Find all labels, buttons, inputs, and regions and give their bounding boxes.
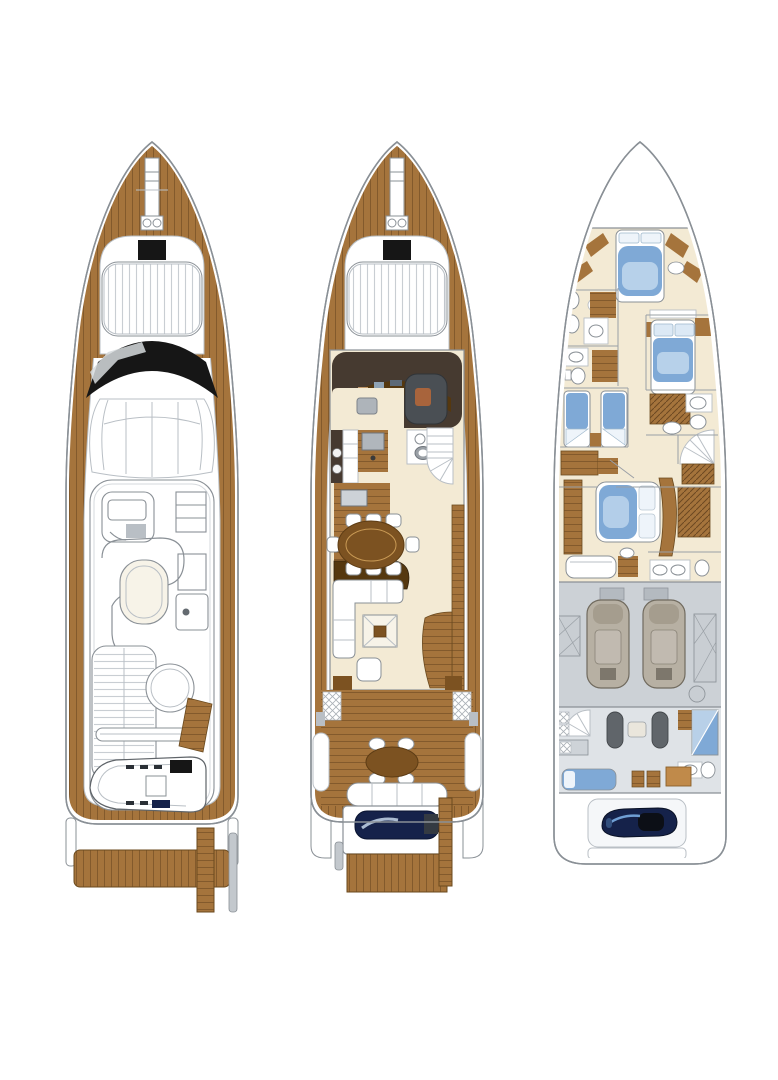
corner-cabinet-port [333,676,352,690]
port-walkway-step [313,733,329,791]
master-bed [596,482,660,542]
stern-platform [588,848,686,859]
tender-boat [90,757,206,812]
crew-table [628,722,646,737]
wet-bar-units [176,492,208,630]
foredeck-sun-pad [347,262,447,336]
stern-garage [588,799,686,859]
starboard-side-steps [453,692,471,720]
main-deck-plan [288,135,506,901]
crew-bunk [562,769,616,790]
helm-station [332,352,462,428]
armchair [357,658,381,681]
crew-shower [692,710,718,755]
port-cleat [316,712,325,726]
corner-cabinet-starboard [445,676,462,690]
port-side-steps [323,692,341,720]
crew-settee-starboard [652,712,668,748]
vip-stool [668,262,684,274]
twin-nightstand [590,433,601,447]
starboard-walkway-step [465,733,481,791]
passerelle-rail [229,833,237,912]
port-engine [587,600,629,688]
starboard-engine [643,600,685,688]
crew-cabinet [666,767,691,786]
master-sofa [566,556,616,578]
crew-toilet [701,762,715,778]
jet-tender [355,811,439,839]
transom-garage [343,806,451,854]
yacht-deck-plan-sheet: { "figure": { "kind": "yacht general arr… [0,0,778,1080]
vanity-stool [620,548,634,558]
foredeck-hatch [138,240,166,260]
foredeck-hatch [383,240,411,260]
dining-table [338,521,404,569]
aft-cockpit [321,690,473,806]
jet-ski [602,808,677,837]
swim-platform [347,854,447,892]
sink [341,490,367,506]
crew-wardrobe [678,710,693,730]
master-locker [678,487,710,537]
stove [362,433,384,450]
starboard-cleat [469,712,478,726]
lower-deck-plan [538,135,746,877]
cockpit-table [366,747,418,777]
flybridge-deck-plan [48,135,260,927]
master-vanity [618,556,638,577]
helm-seat-base [357,398,377,414]
crew-settee-port [607,712,623,748]
hardtop-cowling [90,399,215,478]
vip-bed [616,230,664,302]
coffee-table [363,615,397,647]
master-wardrobe-port [564,480,582,554]
foredeck-sun-pad [102,262,202,336]
